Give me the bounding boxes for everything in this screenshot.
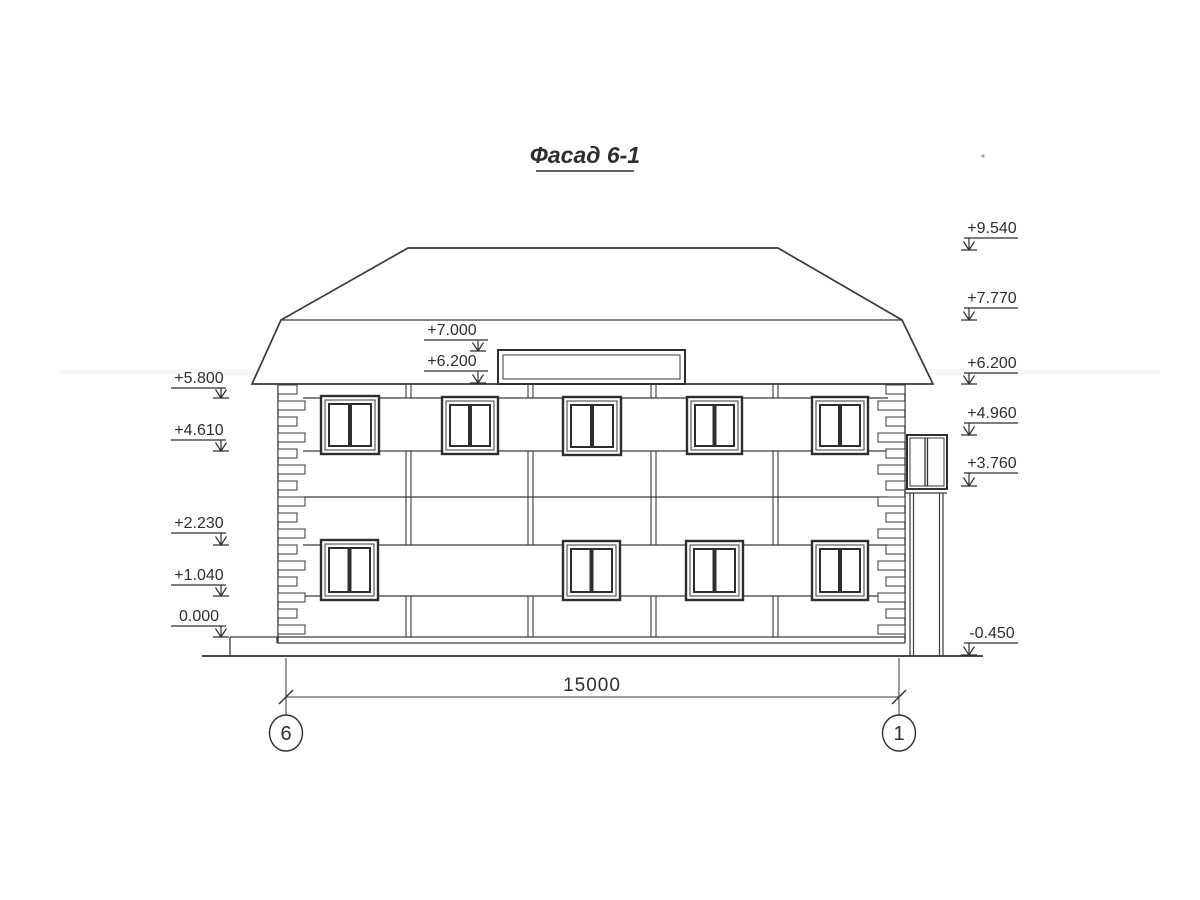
- ink-speck: [981, 154, 984, 157]
- title-block: Фасад 6-1: [530, 142, 640, 171]
- window: [812, 541, 868, 600]
- quoins-left: [278, 385, 305, 634]
- axis-bubble-right: 1: [883, 715, 916, 751]
- window: [563, 397, 621, 455]
- elevation-mark: +7.770: [961, 290, 1018, 320]
- elevation-label: +7.000: [427, 322, 476, 339]
- plinth: [230, 637, 905, 656]
- window: [321, 540, 378, 600]
- elevation-label: +7.770: [967, 290, 1016, 307]
- facade-drawing: Фасад 6-1: [0, 0, 1200, 900]
- quoins-right: [878, 385, 905, 634]
- elevation-mark: +4.960: [961, 405, 1018, 435]
- elevation-label: +6.200: [427, 353, 476, 370]
- elevation-label: +1.040: [174, 567, 223, 584]
- elevation-mark: +9.540: [961, 220, 1018, 250]
- axis-label: 1: [893, 723, 904, 745]
- axis-label: 6: [280, 723, 291, 745]
- sign-board: [498, 350, 685, 384]
- window: [442, 397, 498, 454]
- upper-window-row: [321, 396, 868, 455]
- dimension: 15000: [279, 658, 906, 716]
- lower-window-row: [321, 540, 868, 600]
- window: [812, 397, 868, 454]
- elevation-label: 0.000: [179, 608, 219, 625]
- axis-bubble-left: 6: [270, 715, 303, 751]
- elevation-label: +5.800: [174, 370, 223, 387]
- elevation-label: +9.540: [967, 220, 1016, 237]
- chimney-sill: [905, 489, 947, 493]
- elevation-mark: +1.040: [171, 567, 229, 596]
- elevation-marks-right: +9.540 +7.770 +6.200 +4.960 +3.760 -0.45…: [961, 220, 1018, 655]
- elevation-mark: +6.200: [961, 355, 1018, 384]
- elevation-mark: +3.760: [961, 455, 1018, 486]
- dimension-label: 15000: [563, 675, 621, 696]
- window: [687, 397, 742, 454]
- window: [563, 541, 620, 600]
- elevation-label: -0.450: [969, 625, 1014, 642]
- elevation-mark: +2.230: [171, 515, 229, 545]
- chimney: [905, 435, 947, 656]
- drawing-sheet: Фасад 6-1: [0, 0, 1200, 900]
- elevation-label: +2.230: [174, 515, 223, 532]
- elevation-mark: 0.000: [171, 608, 229, 637]
- elevation-mark: +4.610: [171, 422, 229, 451]
- chimney-shaft: [910, 493, 943, 656]
- window: [321, 396, 379, 454]
- elevation-mark: -0.450: [961, 625, 1018, 655]
- elevation-label: +4.960: [967, 405, 1016, 422]
- page-title: Фасад 6-1: [530, 142, 640, 168]
- elevation-label: +3.760: [967, 455, 1016, 472]
- elevation-mark: +5.800: [171, 370, 229, 398]
- elevation-label: +4.610: [174, 422, 223, 439]
- elevation-marks-left: +5.800 +4.610 +2.230 +1.040 0.000: [171, 370, 229, 637]
- window: [686, 541, 743, 600]
- elevation-label: +6.200: [967, 355, 1016, 372]
